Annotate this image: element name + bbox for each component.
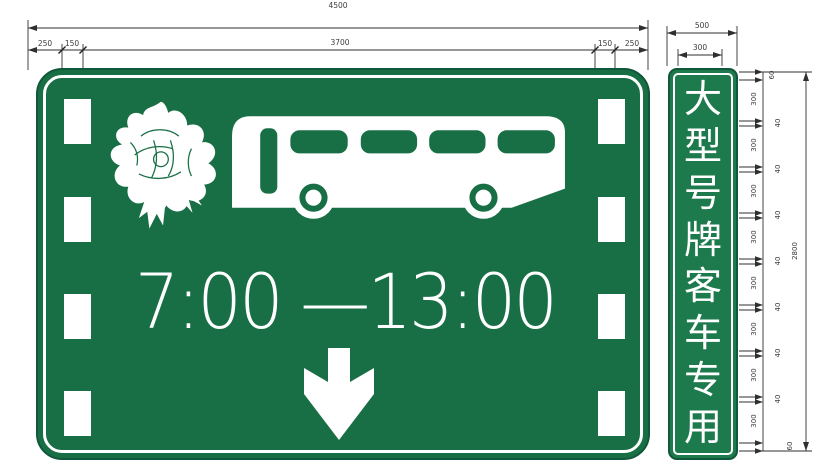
dim-char-height: 300 [750,411,758,431]
lane-dash [598,99,625,144]
time-range-text: 7:00 —13:00 [63,251,628,353]
dim-left-outer: 250 [32,39,58,48]
down-arrow-icon [302,348,376,442]
side-sign-char: 专 [676,360,730,402]
dim-char-gap: 40 [774,251,782,271]
side-sign-text: 大 型 号 牌 客 车 专 用 [676,79,730,449]
side-sign-char: 型 [676,126,730,168]
lane-dash [64,391,91,436]
dim-char-height: 300 [750,319,758,339]
dim-char-height: 300 [750,365,758,385]
dim-char-height: 300 [750,135,758,155]
bus-icon [226,108,570,224]
dim-left-inner: 150 [60,39,84,48]
dim-char-gap: 40 [774,205,782,225]
dim-right-inner: 150 [593,39,617,48]
lane-dash [598,391,625,436]
dim-char-height: 300 [750,273,758,293]
dim-overall-width: 4500 [318,1,358,10]
side-sign-char: 用 [676,407,730,449]
dim-char-gap: 40 [774,343,782,363]
dim-char-gap: 40 [774,389,782,409]
sign-drawing-canvas: 7:00 —13:00 大 型 号 牌 客 车 专 用 4500 3700 25… [0,0,829,476]
side-sign-char: 客 [676,266,730,308]
dim-side-width: 500 [687,21,717,30]
dim-char-gap: 40 [774,297,782,317]
side-sign-char: 号 [676,173,730,215]
side-sign-board: 大 型 号 牌 客 车 专 用 [668,68,738,460]
dim-char-gap: 40 [774,113,782,133]
dim-side-char-width: 300 [685,43,715,52]
lane-dash [64,99,91,144]
dim-end-margin: 60 [768,65,776,85]
side-sign-char: 大 [676,79,730,121]
side-sign-char: 车 [676,313,730,355]
main-sign-board: 7:00 —13:00 [36,68,650,460]
dim-char-height: 300 [750,89,758,109]
dim-char-height: 300 [750,227,758,247]
dim-overall-height: 2800 [791,241,799,261]
dim-panel-width: 3700 [321,38,359,47]
dim-char-height: 300 [750,181,758,201]
dim-end-margin: 60 [786,436,794,456]
dim-right-outer: 250 [619,39,645,48]
lane-dash [598,197,625,242]
lane-dash [64,197,91,242]
dim-char-gap: 40 [774,159,782,179]
peony-flower-icon [98,94,226,236]
side-sign-char: 牌 [676,220,730,262]
